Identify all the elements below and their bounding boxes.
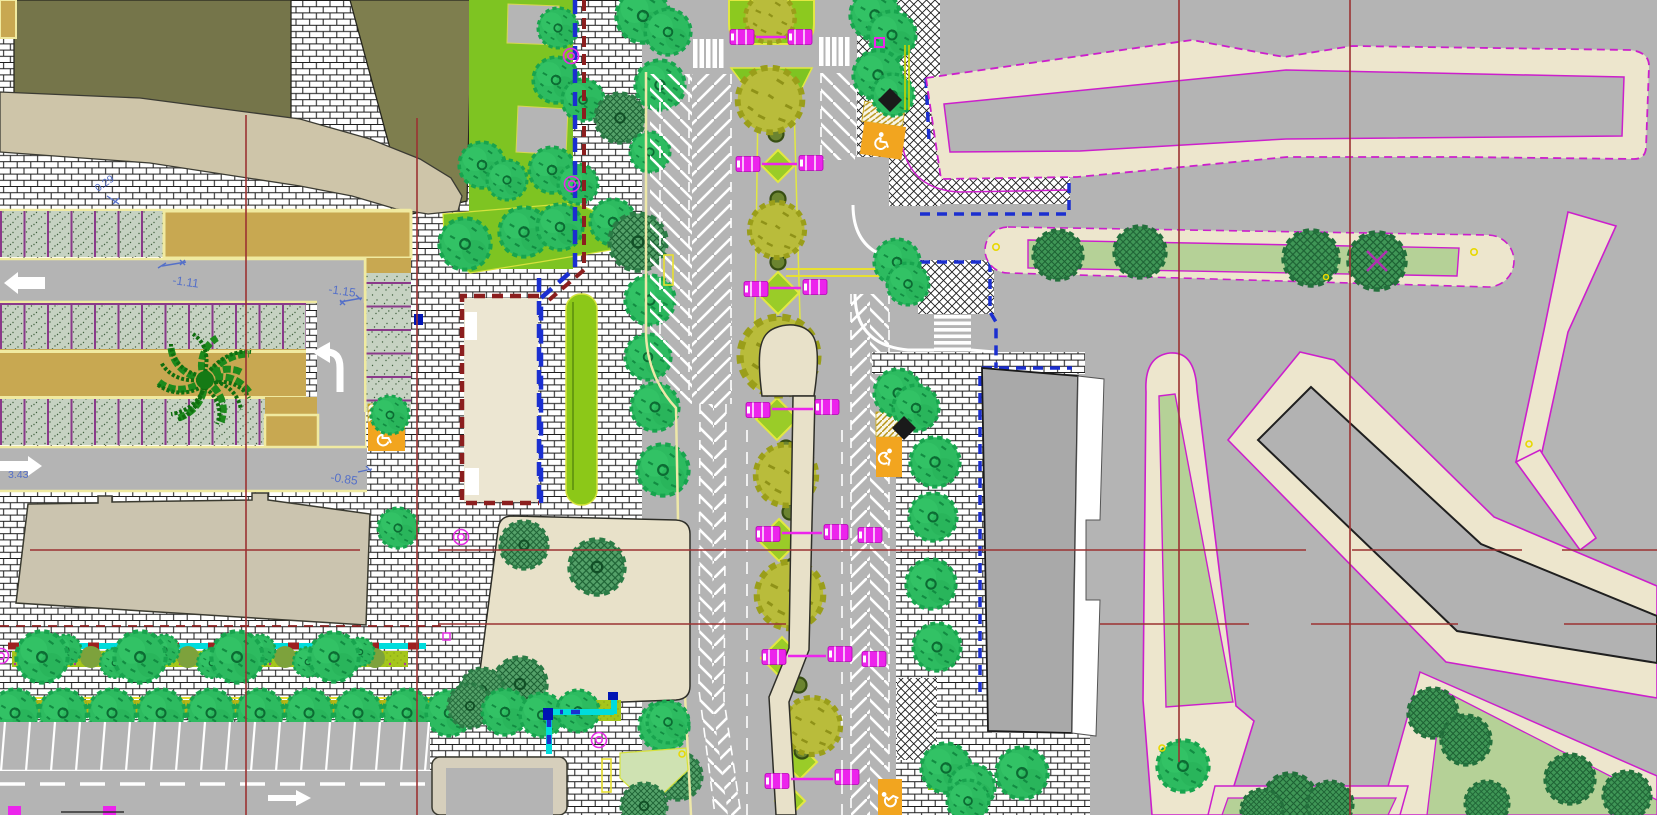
- svg-text:3.43: 3.43: [8, 469, 29, 481]
